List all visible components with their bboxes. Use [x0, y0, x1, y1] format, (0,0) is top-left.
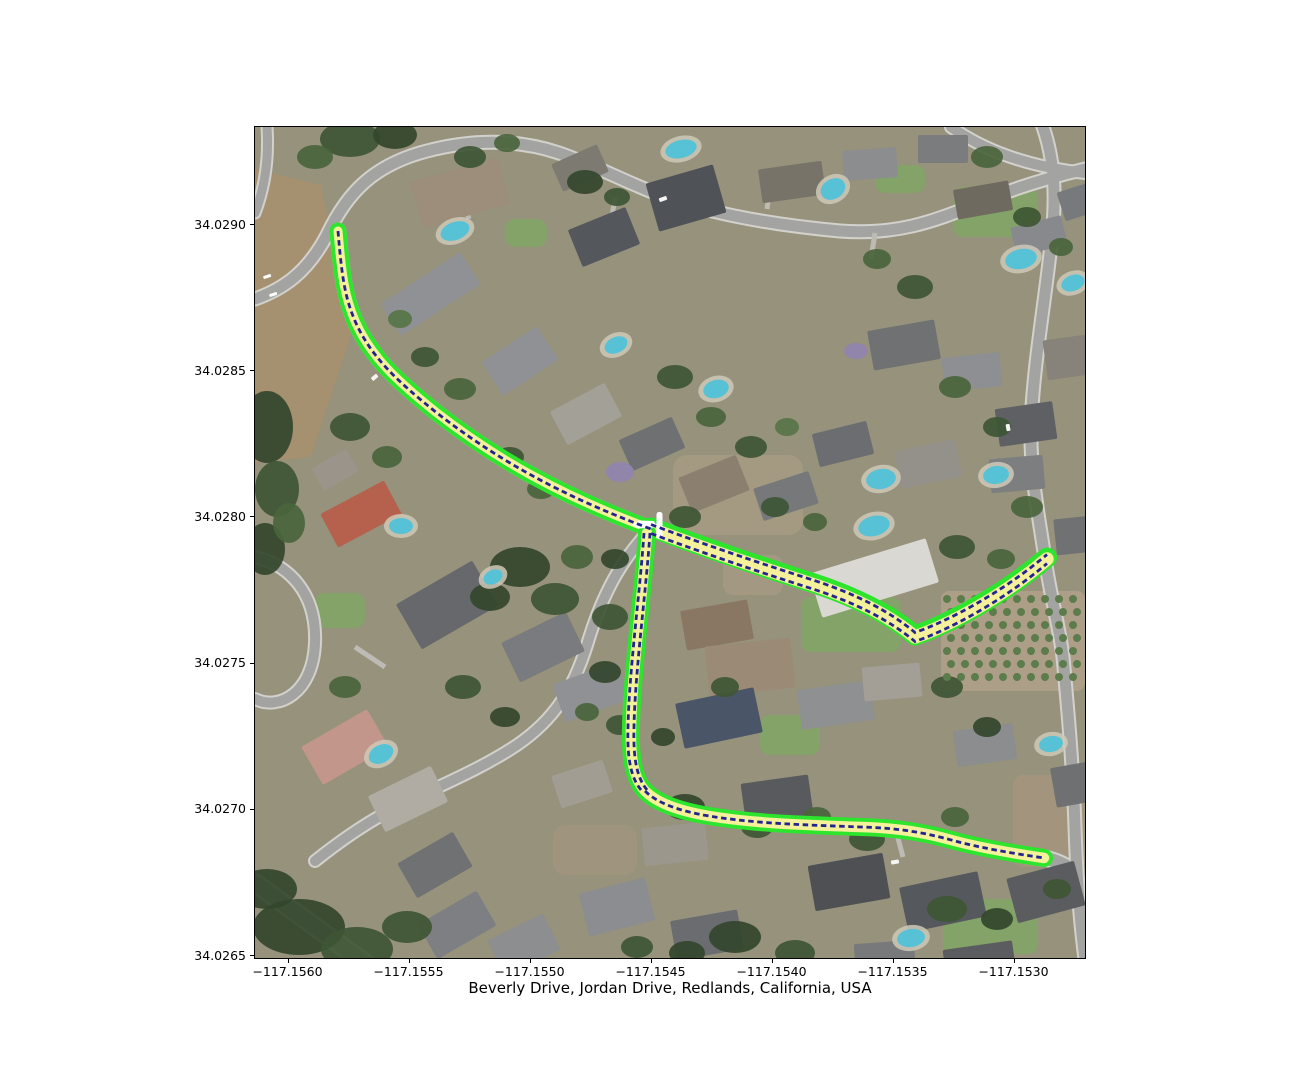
plot-area: [254, 126, 1086, 959]
x-tick-label: −117.1550: [490, 964, 570, 979]
y-tick-label: 34.0265: [176, 948, 246, 963]
y-tick-mark: [250, 516, 254, 517]
x-tick-label: −117.1540: [732, 964, 812, 979]
y-tick-label: 34.0280: [176, 509, 246, 524]
y-tick-mark: [250, 955, 254, 956]
aerial-imagery: [255, 127, 1085, 958]
y-tick-mark: [250, 809, 254, 810]
x-tick-mark: [409, 959, 410, 963]
x-tick-mark: [651, 959, 652, 963]
x-tick-label: −117.1530: [974, 964, 1054, 979]
x-tick-mark: [1014, 959, 1015, 963]
figure-title: Beverly Drive, Jordan Drive, Redlands, C…: [254, 979, 1086, 997]
x-tick-label: −117.1545: [611, 964, 691, 979]
x-tick-label: −117.1535: [853, 964, 933, 979]
x-tick-label: −117.1560: [248, 964, 328, 979]
x-tick-mark: [893, 959, 894, 963]
x-tick-mark: [772, 959, 773, 963]
y-tick-mark: [250, 224, 254, 225]
y-tick-mark: [250, 663, 254, 664]
y-tick-mark: [250, 370, 254, 371]
x-tick-label: −117.1555: [369, 964, 449, 979]
x-tick-mark: [288, 959, 289, 963]
y-tick-label: 34.0275: [176, 655, 246, 670]
y-tick-label: 34.0290: [176, 217, 246, 232]
x-tick-mark: [530, 959, 531, 963]
y-tick-label: 34.0285: [176, 363, 246, 378]
intersection-marker-bar: [657, 512, 663, 539]
y-tick-label: 34.0270: [176, 801, 246, 816]
